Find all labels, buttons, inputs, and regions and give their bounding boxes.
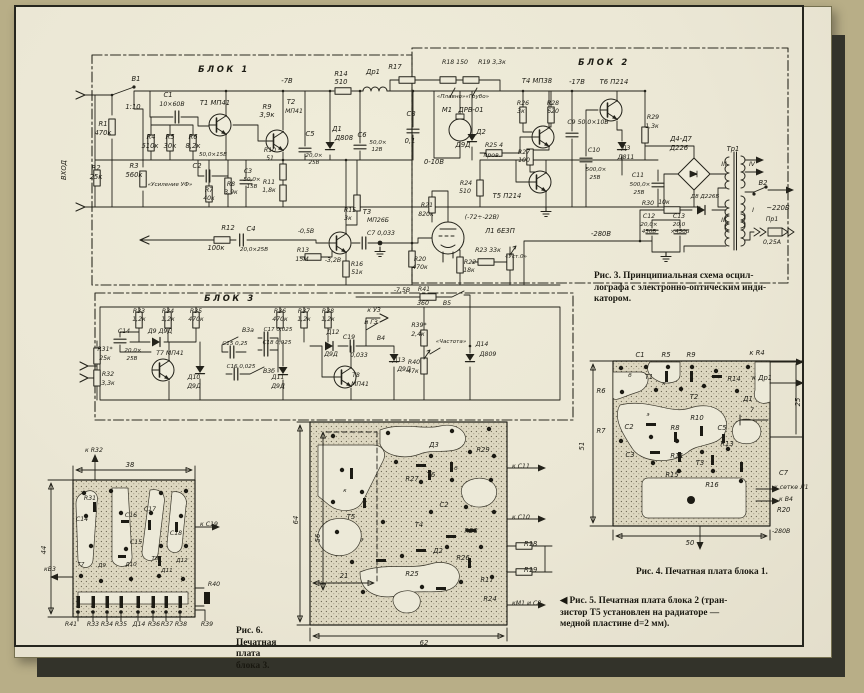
schematic-label: Д1 [331,125,342,133]
schematic-label: R20 [414,256,426,263]
schematic-label: R11 [263,179,275,186]
schematic-label: C14 [118,328,130,335]
schematic-label: C18 [170,530,182,537]
schematic-label: R41 [65,621,77,628]
schematic-label: 62 [420,639,429,647]
schematic-label: э [360,537,363,543]
schematic-label: C1 [163,91,172,99]
schematic-label: -280В [591,230,611,238]
schematic-label: 50,0× [369,140,386,146]
schematic-label: C8 [406,110,416,118]
schematic-label: к УЗ [367,307,380,314]
schematic-label: Д9Д [270,383,285,390]
schematic-label: МП41 [351,381,369,388]
schematic-label: 25В [309,160,320,166]
schematic-label: В3а [242,327,254,334]
schematic-label: 3,9к [224,189,238,196]
schematic-label: R13 [297,247,309,254]
schematic-label: 25В [590,175,601,181]
schematic-label: R15 [665,471,678,479]
schematic-label: C5 [717,424,726,432]
schematic-label: -7В [281,77,293,85]
schematic-label: 20,0× [305,153,322,159]
schematic-label: 1,2к [297,316,311,323]
schematic-label: 470к [94,129,112,137]
schematic-label: III [721,161,727,168]
schematic-label: R29 [647,114,659,121]
caption-line: Печатная [236,638,308,650]
schematic-label: Д14 [132,621,146,628]
schematic-label: C12 [643,213,655,220]
schematic-label: R40 [408,359,420,366]
schematic-label: C15 [130,539,142,546]
schematic-label: 820к [418,211,434,218]
schematic-label: 620 [547,108,559,115]
caption-line: Рис. 6. [236,626,308,638]
schematic-label: 51 [578,442,586,451]
schematic-label: R19 3,3к [478,59,506,66]
schematic-label: II [721,217,725,224]
schematic-label: R40 [208,581,220,588]
schematic-label: к C19 [200,521,218,528]
schematic-label: C3 [625,451,634,459]
schematic-label: 40к [203,195,215,202]
schematic-label: к В4 [779,496,793,503]
schematic-label: «Усиление УФ» [148,182,193,188]
schematic-label: БЛОК 2 [578,57,630,67]
schematic-label: 3,3к [101,380,115,387]
schematic-label: C2 [192,162,201,170]
schematic-label: «Частота» [436,339,467,345]
schematic-label: 20,0×25В [240,247,268,253]
schematic-label: Д2 [475,128,486,136]
schematic-label: 38 [126,461,135,469]
schematic-label: R7 [596,427,606,435]
schematic-label: R35 [190,308,202,315]
schematic-label: R20 [777,506,790,514]
schematic-label: R3 [129,162,138,170]
schematic-label: C16 0,025 [227,364,256,370]
schematic-label: R16 [705,481,719,489]
schematic-label: 470к [412,264,428,271]
schematic-label: R36 [274,308,286,315]
schematic-label: Д808 [334,134,354,142]
schematic-label: (-72÷-22В) [465,214,499,221]
schematic-label: -7,5В [394,287,410,294]
schematic-label: Д8 Д226Б [690,194,720,200]
schematic-label: R22 [464,259,476,266]
schematic-label: Д10 [187,374,201,381]
schematic-label: C19 [343,334,355,341]
schematic-label: Д9 Д9Д [147,328,173,335]
schematic-label: Т6 [427,471,436,479]
schematic-label: 470к [188,316,204,323]
schematic-label: R18 150 [442,59,468,66]
schematic-label: R30 [642,200,654,207]
schematic-label: R35 [115,621,127,628]
schematic-label: Д3 [621,145,631,152]
schematic-label: 50,0×15В [199,152,227,158]
schematic-label: R28 [547,100,559,107]
fig6-caption: Рис. 6.Печатнаяплатаблока 3. [236,626,308,672]
schematic-label: R10 [264,147,276,154]
schematic-label: IV [749,161,756,168]
schematic-label: к C11 [512,463,530,470]
schematic-label: R36 [148,621,160,628]
schematic-label: R27 [518,149,530,156]
schematic-label: к R4 [749,349,764,357]
schematic-label: R28 [464,527,478,535]
schematic-label: C11 [632,172,644,179]
caption-line: катором. [594,294,806,306]
schematic-label: R6 [188,133,198,141]
schematic-label: кВ3 [44,566,56,573]
schematic-label: R25 4 [485,142,503,149]
schematic-label: 100 [518,157,530,164]
schematic-label: Т6 П214 [600,78,629,86]
schematic-label: БЛОК 1 [198,64,250,74]
schematic-label: C17 0,025 [264,327,293,333]
schematic-label: 1:10 [125,103,140,111]
schematic-label: R9 [686,351,695,359]
schematic-label: 3к [344,215,352,222]
pcb-board1 [590,359,804,551]
schematic-label: 44 [40,546,48,555]
schematic-label: Д809 [479,351,497,358]
schematic-label: R24 [483,595,496,603]
schematic-label: 21 [340,572,349,580]
schematic-label: R34 [162,308,174,315]
schematic-label: 25к [99,355,111,362]
schematic-label: R41 [418,286,430,293]
schematic-label: R31 [84,495,96,502]
schematic-label: R8 [227,181,235,188]
schematic-label: Д4-Д7 [669,135,692,143]
caption-line: лографа с электронно-оптическим инди- [594,283,806,295]
schematic-label: -0,5В [298,228,314,235]
caption-line: ◀ Рис. 5. Печатная плата блока 2 (тран- [560,596,824,608]
schematic-label: 2,4к [411,331,425,338]
schematic-label: Тр1 [727,145,740,153]
schematic-label: ×450В [670,229,689,235]
schematic-label: БЛОК 3 [204,293,256,303]
schematic-label: C4 [246,225,255,233]
schematic-label: 50 [686,539,695,547]
schematic-label: 30к [164,142,178,150]
fig5-caption: ◀ Рис. 5. Печатная плата блока 2 (тран-з… [560,596,824,631]
schematic-label: R19 [524,566,537,574]
schematic-label: 7 [750,407,754,414]
schematic-label: C18 0,025 [263,340,292,346]
schematic-label: Д3 [428,441,439,449]
schematic-label: «Плавно»«Грубо» [437,94,490,100]
schematic-label: R12 [221,224,234,232]
schematic-label: C15 0,25 [222,341,248,347]
schematic-label: C7 0,033 [367,230,395,237]
pcb-board3 [48,454,220,621]
schematic-label: Д10 [124,562,137,568]
schematic-label: к сетке Л1 [774,484,809,491]
schematic-label: R39 [201,621,213,628]
schematic-label: Д9Д [323,351,338,358]
schematic-label: I [752,207,754,214]
schematic-label: Д11 [160,568,173,574]
schematic-label: Др1 [365,68,380,76]
schematic-label: 510к [141,142,159,150]
schematic-label: C2 [439,501,448,509]
pcb-board2 [297,422,552,645]
schematic-label: ~220В [766,204,790,212]
schematic-label: 100к [207,244,225,252]
schematic-label: к C10 [512,514,530,521]
schematic-label: 56 [314,533,322,542]
caption-line: Рис. 4. Печатная плата блока 1. [636,567,818,579]
schematic-label: R38 [322,308,334,315]
schematic-label: R33 [87,621,99,628]
schematic-label: 20,0 [673,222,686,228]
schematic-label: 20,0× [124,348,141,354]
schematic-label: 50,0× [243,177,260,183]
schematic-label: 8,2к [186,142,202,150]
scanned-page-background: { "captions": { "fig3": ["Рис. 3. Принци… [0,0,864,693]
schematic-label: R21 [421,202,433,209]
schematic-label: 25к [90,173,104,181]
schematic-label: C7 [779,469,789,477]
schematic-label: -3,2В [325,257,341,264]
schematic-label: R37 [298,308,310,315]
caption-line: медной пластине d=2 мм). [560,619,824,631]
schematic-label: R17 [480,576,494,584]
schematic-label: 15В [247,184,258,190]
schematic-label: 1,3к [645,123,659,130]
caption-line: зистор Т5 установлен на радиаторе — [560,608,824,620]
schematic-label: Т2 [287,98,295,106]
schematic-label: Т4 [415,521,423,529]
schematic-label: 0,033 [350,352,368,359]
schematic-label: R38 [175,621,187,628]
schematic-label: 0,25А [763,239,781,246]
schematic-label: ДРВ-01 [457,106,483,114]
schematic-label: R5 [661,351,670,359]
schematic-label: 10к [658,199,670,206]
schematic-label: 18к [463,267,475,274]
schematic-label: 20,0× [640,222,657,228]
schematic-label: C2 [624,423,633,431]
schematic-label: МП41 [285,108,303,115]
schematic-label: 25В [127,356,138,362]
schematic-label: Д12 [175,558,188,564]
schematic-label: 500,0× [586,167,607,173]
schematic-label: Т5 [347,513,355,521]
schematic-label: 560к [125,171,143,179]
schematic-label: и ГЗ [364,319,377,326]
schematic-label: Т3 [363,208,371,216]
schematic-label: R33 [133,308,145,315]
schematic-label: Д9Д [455,141,471,149]
schematic-label: R24 [460,180,472,187]
schematic-label: R11 [670,452,683,460]
schematic-label: В5 [443,300,451,307]
schematic-label: R25 [405,570,418,578]
schematic-label: C5 [305,130,314,138]
schematic-label: 510 [335,78,348,86]
schematic-label: кМ1 и С8 [512,600,541,607]
schematic-label: R34 [101,621,113,628]
schematic-label: 3,9к [260,111,276,119]
schematic-label: R7 [205,187,213,194]
schematic-label: C1 [635,351,644,359]
caption-line: блока 3. [236,661,308,673]
schematic-label: R9 [262,103,271,111]
schematic-label: -17В [569,78,585,86]
schematic-label: R14 [727,375,740,383]
schematic-label: Пр1 [766,216,779,223]
schematic-label: Д226 [669,144,689,152]
schematic-label: R32 [102,371,114,378]
schematic-label: В1 [132,75,141,83]
schematic-label: Д9 [97,563,106,569]
schematic-label: к Др1 [752,374,772,382]
schematic-label: R15 [344,207,356,214]
schematic-label: C13 [673,213,685,220]
schematic-label: Т7 [78,562,85,568]
schematic-label: Д9Д [186,383,201,390]
schematic-label: R13 [720,440,733,448]
schematic-label: к R32 [85,447,103,454]
schematic-label: Д811 [617,154,635,161]
schematic-label: 51к [351,269,363,276]
schematic-label: МП26Б [367,217,389,224]
schematic-label: R39* [411,322,426,329]
schematic-label: R18 [524,540,538,548]
schematic-label: Д14 [475,341,489,348]
schematic-label: R10 [690,414,703,422]
schematic-label: э [646,412,649,418]
schematic-label: -280В [772,528,790,535]
schematic-label: R1 [98,120,107,128]
fig4-caption: Рис. 4. Печатная плата блока 1. [636,567,818,579]
schematic-label: Т7 МП41 [156,350,184,357]
schematic-label: R37 [161,621,173,628]
schematic-svg: БЛОК 1БЛОК 2БЛОК 3ВХОДВ11:10C110×60ВR147… [0,0,864,693]
schematic-label: C10 [588,147,600,154]
schematic-label: Т1 [645,373,653,381]
schematic-label: 1,2к [321,316,335,323]
schematic-label: ВХОД [60,160,68,180]
schematic-label: Т3 [696,459,704,467]
schematic-label: Д12 [326,329,340,336]
schematic-label: В4 [377,335,385,342]
schematic-label: 25 [794,398,802,407]
schematic-label: б [628,373,632,379]
schematic-label: R17 [388,63,402,71]
schematic-label: C17 [144,506,156,513]
schematic-label: R26 [517,100,529,107]
schematic-label: Т5 П214 [493,192,522,200]
schematic-label: 47к [407,368,419,375]
schematic-label: Д2 [432,547,443,555]
schematic-label: Д13 [392,357,406,364]
schematic-label: 450В [642,229,657,235]
schematic-label: Т2 [690,393,698,401]
schematic-label: Т8 [352,372,360,379]
fig3-caption: Рис. 3. Принципиальная схема осцил-логра… [594,271,806,306]
schematic-label: R5 [165,133,174,141]
schematic-label: Т4 МП38 [522,77,553,85]
schematic-label: 1,2к [132,316,146,323]
caption-line: Рис. 3. Принципиальная схема осцил- [594,271,806,283]
schematic-label: R2 [91,164,100,172]
schematic-label: В2 [759,179,768,187]
schematic-label: Л1 6Е3П [484,227,515,235]
schematic-label: 0-10В [424,158,444,166]
schematic-label: б [454,466,458,472]
schematic-label: R16 [351,261,363,268]
schematic-label: Д11 [271,374,285,381]
schematic-label: 10×60В [159,101,184,108]
schematic-label: «Уст.0» [505,254,528,260]
schematic-label: М1 [442,106,452,114]
schematic-label: 3к [517,108,525,115]
schematic-label: R23 33к [475,247,501,254]
schematic-label: Т8 [152,556,159,562]
schematic-label: 470к [272,316,288,323]
schematic-label: R27 [405,475,419,483]
schematic-label: 0,1 [405,137,416,145]
schematic-label: C14 [76,516,88,523]
schematic-label: 500,0× [630,182,651,188]
schematic-label: 64 [292,516,300,525]
schematic-label: 25В [634,190,645,196]
schematic-label: 510 [459,188,471,195]
schematic-label: 12В [372,147,383,153]
schematic-label: пров. [483,152,500,159]
schematic-label: R4 [146,133,155,141]
schematic-label: C3 [244,168,252,175]
schematic-label: 15М [295,256,309,263]
schematic-label: Т1 МП41 [200,99,230,107]
schematic-label: Д1 [742,395,753,403]
schematic-label: 360 [417,300,429,307]
schematic-label: C6 [357,131,367,139]
schematic-label: C9 50,0×10В [567,119,608,126]
schematic-label: C16 [125,512,137,519]
schematic-label: R14 [334,70,347,78]
schematic-label: R29 [476,446,489,454]
schematic-label: R8 [670,424,680,432]
schematic-label: R6 [596,387,606,395]
schematic-label: R31* [97,346,112,353]
schematic-label: 1,2к [161,316,175,323]
schematic-label: 1,8к [262,187,276,194]
schematic-label: R26 [456,554,470,562]
caption-line: плата [236,649,308,661]
schematic-label: 51 [266,155,274,162]
